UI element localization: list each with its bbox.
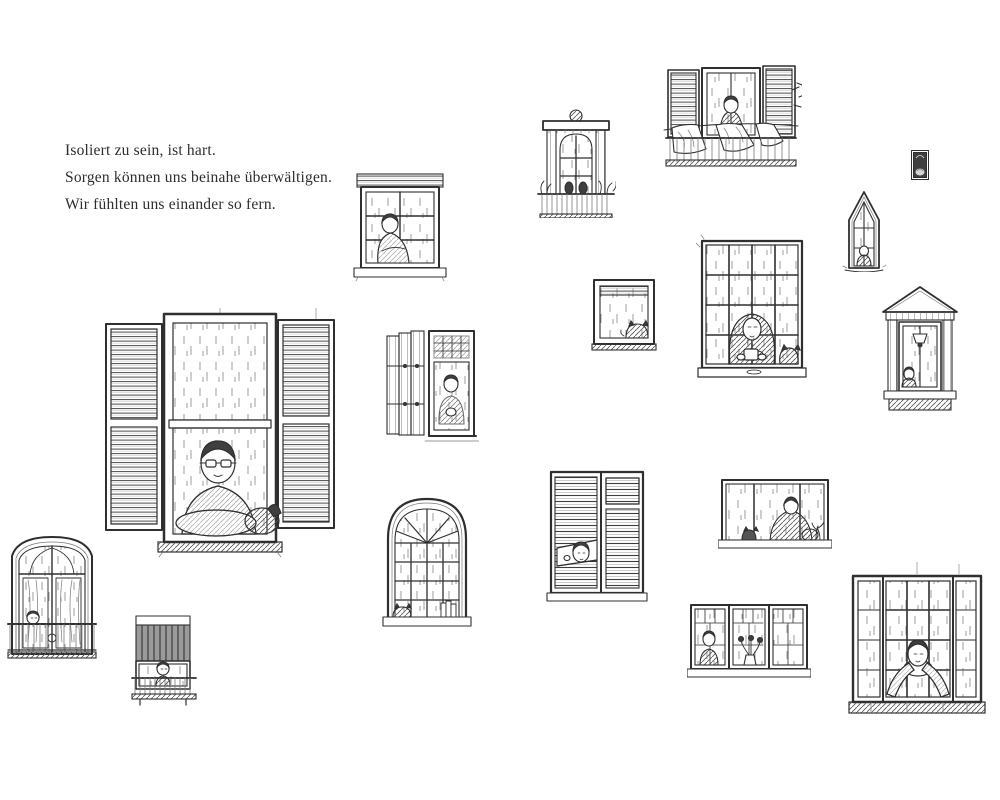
illustration-window-tiny (910, 149, 930, 181)
illustration-window-french-balcony (6, 528, 98, 662)
illustration-window-square-cat (590, 276, 658, 354)
mug (744, 349, 758, 360)
poem-line-3: Wir fühlten uns einander so fern. (65, 197, 332, 213)
curled-figure (916, 169, 925, 176)
left-shutter (106, 324, 162, 530)
illustration-window-blinds (545, 464, 649, 604)
illustration-window-woman-cat (696, 233, 808, 381)
illustration-window-man-dog (100, 308, 340, 558)
illustration-window-arched-fanlight (381, 485, 473, 627)
cat-figure (780, 345, 800, 364)
child-figure (902, 367, 916, 387)
illustration-window-blanket-figure (718, 472, 832, 556)
illustration-window-pediment (876, 282, 964, 414)
poem-text: Isoliert zu sein, ist hart. Sorgen könne… (65, 143, 332, 224)
illustration-window-gothic (841, 184, 887, 272)
book-page: Isoliert zu sein, ist hart. Sorgen könne… (0, 0, 1000, 800)
rolling-shutter (136, 625, 190, 661)
illustration-window-person-leaning (847, 562, 987, 717)
illustration-window-roller-shutter (128, 612, 200, 706)
folded-shutters (387, 331, 424, 435)
illustration-window-balcony-laundry (660, 60, 802, 168)
illustration-window-triple-flowers (687, 597, 811, 681)
illustration-window-folding-shutters (381, 322, 479, 446)
illustration-window-ornate-balcony (536, 106, 616, 218)
poem-line-2: Sorgen können uns beinahe überwältigen. (65, 170, 332, 186)
illustration-window-person-sitting (352, 170, 448, 282)
balcony-railing (538, 194, 614, 218)
poem-line-1: Isoliert zu sein, ist hart. (65, 143, 332, 159)
right-shutter (278, 320, 334, 528)
child-figure (27, 611, 39, 624)
